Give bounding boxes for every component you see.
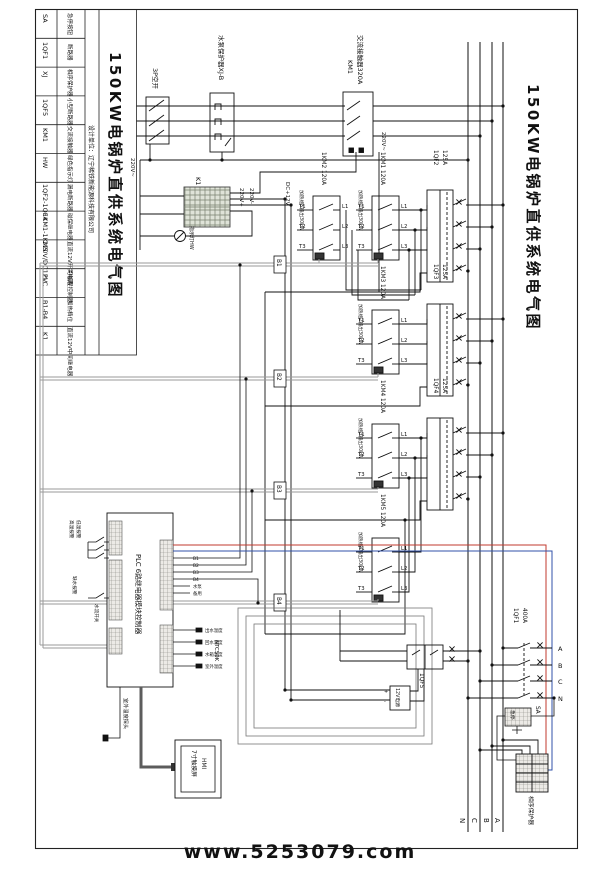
- legend-name: 可编程控制器: [66, 270, 74, 304]
- probe-label: 室外温度探头: [122, 698, 130, 729]
- t-label: T1: [357, 204, 365, 210]
- t-label: T2: [357, 224, 365, 230]
- sa-code: SA: [534, 706, 540, 714]
- plc-output-wires: [173, 266, 258, 604]
- outdoor-probe: [103, 687, 120, 741]
- v220p-label: 220V+: [238, 188, 244, 207]
- legend-names: 急停按钮 断路器 相序保护器 小型断路器 交流接触器 绿色指示灯 漏电断路器 磁…: [66, 13, 74, 377]
- v220-coil-label: 220V~: [380, 132, 386, 151]
- legend-code: K1: [41, 332, 49, 340]
- phase-label: C: [558, 678, 563, 686]
- phase-label: A: [558, 645, 563, 653]
- plc-output-label: B4: [193, 577, 199, 583]
- l-label: L2: [401, 338, 407, 344]
- contactor-1km1: [356, 196, 427, 300]
- breaker-rating: 125A: [441, 150, 447, 165]
- switch-3p-label: 3P空开: [151, 68, 160, 90]
- legend-code: HW: [41, 157, 49, 169]
- heat-bus-tag: B2: [275, 373, 281, 381]
- phase-out-labels: A B C N: [558, 645, 563, 703]
- phase-label: B: [558, 662, 562, 670]
- l-label: L3: [401, 244, 407, 250]
- l-label: L2: [401, 224, 407, 230]
- legend-name: 直流12V中间继电器: [66, 327, 74, 377]
- breaker-code: 1QF4: [432, 378, 438, 394]
- hmi-panel: [141, 687, 221, 798]
- plc-output-labels: B1 B2 B3 B4 水泵 备用: [193, 556, 202, 597]
- contactor-name: 1KM2 120A: [320, 152, 326, 185]
- l-label: L1: [342, 204, 348, 210]
- legend-code: B1-B4: [41, 300, 49, 319]
- t-label: T1: [298, 204, 306, 210]
- heat-bus-tags: B1 B2 B3 B4: [274, 256, 286, 611]
- contactor-name: 1KM4 120A: [379, 380, 385, 413]
- title-block: SA 1QF1 XJ 1QF5 KM1 HW 1QF2-1QF4 1KM1-1K…: [36, 10, 137, 377]
- plc-controller: [88, 513, 173, 687]
- psu-minus: -: [384, 699, 386, 705]
- legend-code: PLC: [41, 274, 49, 287]
- drawing-title-left: 150KW电锅炉直供系统电气图: [106, 52, 124, 299]
- pump-protector-label: 水泵保护器XJ-B: [217, 35, 226, 80]
- plc-input-label: 水流开关: [93, 604, 100, 623]
- plc-input-label: 低温报警: [75, 520, 82, 539]
- t-label: T1: [357, 432, 365, 438]
- contactor-name: 1KM3 120A: [379, 266, 385, 299]
- t-label: T1: [357, 318, 365, 324]
- legend-name: 绿色指示灯: [66, 155, 74, 183]
- main-breaker-code: 1QF1: [512, 608, 518, 624]
- t-label: T2: [357, 338, 365, 344]
- t-label: T2: [357, 452, 365, 458]
- ntc-sensor-label: 室外温度: [205, 663, 223, 670]
- legend-code: KM1: [41, 128, 49, 142]
- km1-code-label: KM1: [346, 60, 354, 74]
- legend-name: 交流接触器: [66, 126, 74, 154]
- t-label: T3: [357, 244, 365, 250]
- v220m-label: 220V-: [248, 188, 254, 204]
- drawing-title-right: 150KW电锅炉直供系统电气图: [524, 84, 542, 331]
- power-bus: [468, 42, 503, 832]
- wire-routing-loops: [238, 608, 432, 744]
- l-label: L3: [401, 358, 407, 364]
- sa-text: 急停: [509, 710, 516, 720]
- phase-label: N: [558, 695, 563, 703]
- l-label: L2: [401, 452, 407, 458]
- bus-label: B: [482, 818, 490, 823]
- legend-code: SA: [41, 14, 49, 23]
- t-label: T3: [357, 586, 365, 592]
- legend-name: 加热档位: [66, 300, 74, 323]
- legend-name: 相序保护器: [66, 69, 74, 97]
- phase-sequence-protector: [480, 740, 548, 792]
- main-breaker-rating: 400A: [521, 608, 527, 623]
- electrical-diagram: SA 1QF1 XJ 1QF5 KM1 HW 1QF2-1QF4 1KM1-1K…: [0, 0, 600, 871]
- plc-output-label: B2: [193, 563, 199, 569]
- l-label: L3: [401, 472, 407, 478]
- breaker-code: 1QF2: [432, 150, 438, 166]
- l-label: L2: [401, 566, 407, 572]
- terminal-labels: T1 T2 T3 L1 L2 L3 T1 T2 T3 L1 L2 L3 T1 T…: [298, 204, 407, 592]
- schematic-page: SA 1QF1 XJ 1QF5 KM1 HW 1QF2-1QF4 1KM1-1K…: [0, 0, 600, 871]
- breaker-rating: 125A: [441, 264, 447, 279]
- contactor-name: 1KM1 120A: [379, 152, 385, 185]
- km1-name-label: 交流接触器320A: [356, 35, 365, 85]
- plc-input-label: 缺水报警: [71, 576, 78, 595]
- legend-name: 断路器: [66, 44, 74, 61]
- psu-label: 12V电源: [394, 688, 401, 707]
- l-label: L3: [342, 244, 348, 250]
- heat-bus-tag: B4: [275, 597, 281, 605]
- ntc-label: NTC50K: [213, 640, 219, 662]
- legend-name: 急停按钮: [66, 13, 74, 36]
- breaker-rating: 125A: [441, 378, 447, 393]
- hmi-line1: HMI: [200, 758, 206, 769]
- bus-label: N: [458, 818, 466, 823]
- l-label: L1: [401, 204, 407, 210]
- psu-12v: [285, 669, 424, 710]
- t-label: T3: [298, 244, 306, 250]
- plc-output-label: 备用: [193, 590, 202, 597]
- contactor-1km3: [356, 310, 427, 374]
- heat-bus-tag: B1: [275, 259, 281, 267]
- plc-label: PLC 6路继电器模块控制器: [134, 554, 143, 634]
- plc-output-label: 水泵: [193, 583, 202, 590]
- t-label: T3: [357, 358, 365, 364]
- phase-protector-label: 相序保护器: [527, 796, 535, 825]
- sa-emergency-stop: [497, 698, 554, 760]
- bus-label: C: [470, 818, 478, 823]
- hmi-line2: 7寸触摸屏: [190, 750, 198, 777]
- contactor-labels: 1KM2 120A 1KM1 120A 1KM3 120A 1KM4 120A …: [320, 152, 385, 527]
- l-label: L1: [401, 432, 407, 438]
- psu-plus: +: [384, 689, 388, 695]
- t-label: T3: [357, 472, 365, 478]
- watermark: www.5253079.com: [184, 841, 417, 863]
- k1-relay-module: [140, 187, 291, 242]
- lamp-label: 指示灯HW: [188, 226, 195, 250]
- legend-name: 磁保继电器: [66, 213, 74, 241]
- breaker-code: 1QF3: [432, 264, 438, 280]
- plc-input-labels: 高温报警 低温报警 缺水报警 水流开关: [68, 520, 100, 623]
- heat-bus-tag: B3: [275, 485, 281, 493]
- legend-code: 1QF1: [41, 42, 49, 59]
- legend-code: XJ: [41, 71, 49, 77]
- qf5-label: 1QF5: [418, 673, 424, 689]
- legend-name: 漏电断路器: [66, 184, 74, 212]
- l-label: L3: [401, 586, 407, 592]
- v220-in-label: 220V~: [129, 158, 135, 177]
- breaker-labels: 1QF2 125A 1QF3 125A 1QF4 125A: [432, 150, 447, 394]
- t-label: T2: [298, 224, 306, 230]
- qf5-breaker: [340, 610, 480, 669]
- t-label: T2: [357, 566, 365, 572]
- contactor-name: 1KM5 120A: [379, 494, 385, 527]
- k1-label: K1: [194, 177, 202, 185]
- plc-output-label: B3: [193, 570, 199, 576]
- heat-output-labels: 加热组5输出30kW 加热组1输出30kW 加热组2输出30kW 加热组3输出3…: [298, 190, 364, 573]
- legend-name: 小型断路器: [66, 98, 74, 126]
- legend-codes: SA 1QF1 XJ 1QF5 KM1 HW 1QF2-1QF4 1KM1-1K…: [41, 14, 49, 340]
- plc-input-label: 高温报警: [68, 520, 75, 539]
- plc-output-label: B1: [193, 556, 199, 562]
- bus-label: A: [493, 818, 501, 823]
- ntc-sensor-label: 出水温度: [205, 627, 223, 634]
- coil-rails: [40, 259, 378, 648]
- l-label: L1: [401, 318, 407, 324]
- dc-rails: [285, 199, 291, 700]
- legend-code: 1QF5: [41, 99, 49, 116]
- contactor-1km4: [356, 424, 427, 488]
- ntc-sensors: [173, 628, 202, 668]
- l-label: L2: [342, 224, 348, 230]
- design-unit: 设计单位：辽宁稀铁新能源科技有限公司: [87, 125, 95, 233]
- breaker-1qf4: [265, 292, 503, 634]
